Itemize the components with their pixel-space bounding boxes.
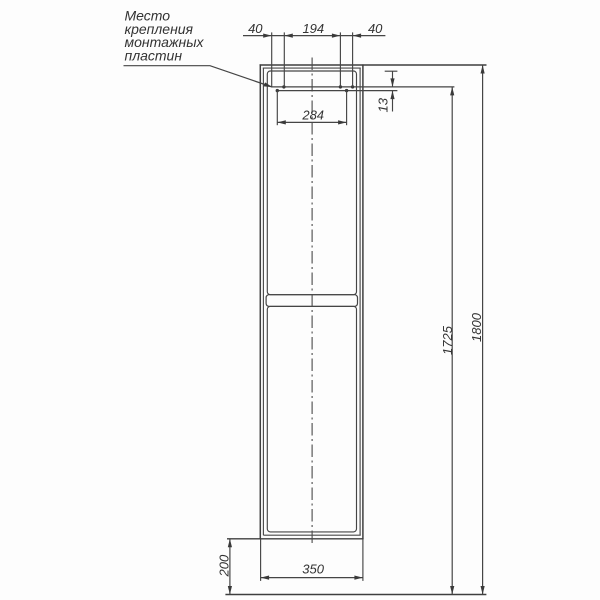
svg-text:200: 200 [216,554,231,577]
svg-text:284: 284 [301,108,324,123]
svg-text:1800: 1800 [469,312,484,342]
svg-text:1725: 1725 [440,325,455,355]
svg-text:40: 40 [368,21,383,36]
svg-text:194: 194 [302,21,324,36]
svg-text:пластин: пластин [125,48,183,64]
svg-text:13: 13 [376,97,391,112]
svg-text:350: 350 [302,562,324,577]
svg-text:40: 40 [248,21,263,36]
